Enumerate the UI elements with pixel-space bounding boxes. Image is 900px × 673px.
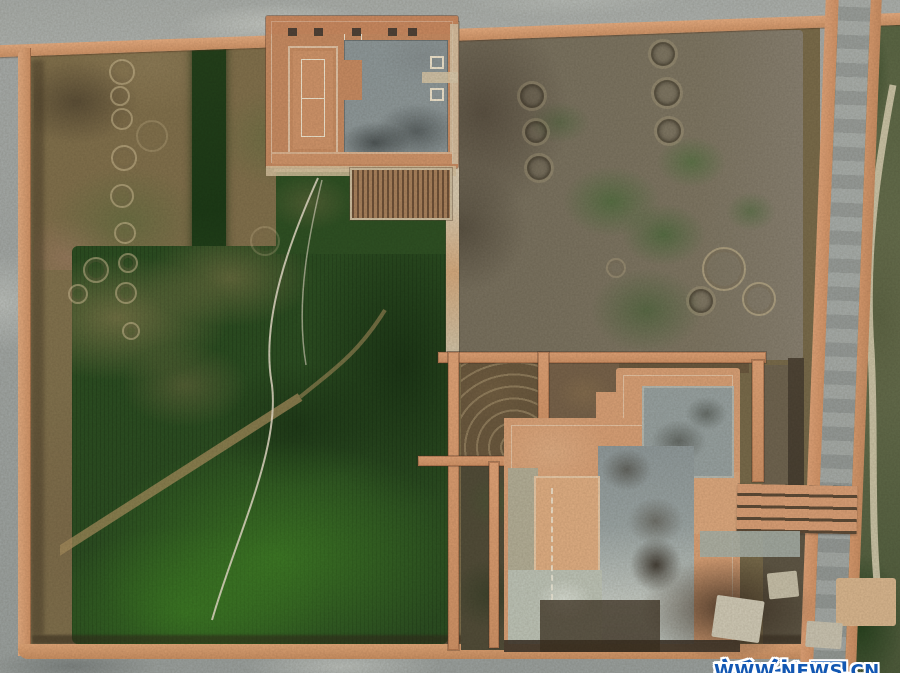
boundary-wall-left xyxy=(18,48,31,656)
inner-raised-platform xyxy=(534,476,600,572)
trace-square xyxy=(430,56,444,69)
crop-mark-ring xyxy=(111,145,137,171)
causeway-pavement xyxy=(700,531,800,557)
crop-mark-rosette xyxy=(651,42,675,66)
crop-mark-ring xyxy=(250,226,280,256)
crop-mark-ring xyxy=(136,120,168,152)
crop-mark-ring xyxy=(111,108,133,130)
east-causeway xyxy=(737,484,858,535)
crop-mark-ring xyxy=(606,258,626,278)
green-field-extension xyxy=(276,168,360,254)
stone-block xyxy=(767,571,800,600)
crop-mark-rosette xyxy=(654,80,680,106)
enclosure-wall-inner xyxy=(489,462,499,648)
sub-platform-trace xyxy=(301,59,325,137)
enclosure-wall-left xyxy=(448,352,459,650)
crop-mark-ring xyxy=(115,282,137,304)
crop-mark-rosette xyxy=(689,289,713,313)
crop-mark-rosette xyxy=(657,119,681,143)
south-edge-band xyxy=(272,152,452,164)
post-hole xyxy=(408,28,417,36)
crop-mark-rosette xyxy=(525,121,547,143)
crop-mark-ring xyxy=(742,282,776,316)
hatched-ramp xyxy=(352,170,450,218)
aerial-photo-stage: 新华网 WWW.NEWS.CN xyxy=(0,0,900,673)
main-green-field xyxy=(72,246,448,644)
stone-block xyxy=(836,578,896,626)
crop-mark-ring xyxy=(702,247,746,291)
crop-mark-ring xyxy=(110,86,130,106)
wall-shadow xyxy=(31,60,44,635)
crop-mark-ring xyxy=(68,284,88,304)
enclosure-wall-top xyxy=(438,352,766,363)
green-field-extension xyxy=(358,214,448,254)
crop-mark-rosette xyxy=(527,156,551,180)
post-hole xyxy=(288,28,297,36)
crop-mark-ring xyxy=(122,322,140,340)
crop-mark-ring xyxy=(110,184,134,208)
soil-patch xyxy=(540,600,660,652)
crop-mark-ring xyxy=(83,257,109,283)
xinhua-url-text: WWW.NEWS.CN xyxy=(714,661,880,673)
west-sub-platform xyxy=(288,46,338,154)
stone-block xyxy=(805,621,843,649)
dashed-trace-line xyxy=(551,488,553,600)
trace-square xyxy=(430,88,444,101)
crop-mark-ring xyxy=(118,253,138,273)
crop-mark-ring xyxy=(114,222,136,244)
crop-mark-ring xyxy=(109,59,135,85)
east-edge-wall xyxy=(450,24,458,164)
post-hole xyxy=(314,28,323,36)
north-building-foundation xyxy=(266,16,458,168)
platform-step xyxy=(344,60,362,100)
crop-mark-rosette xyxy=(520,84,544,108)
enclosure-wall-right xyxy=(752,360,764,482)
post-hole xyxy=(388,28,397,36)
stone-block xyxy=(711,595,764,643)
